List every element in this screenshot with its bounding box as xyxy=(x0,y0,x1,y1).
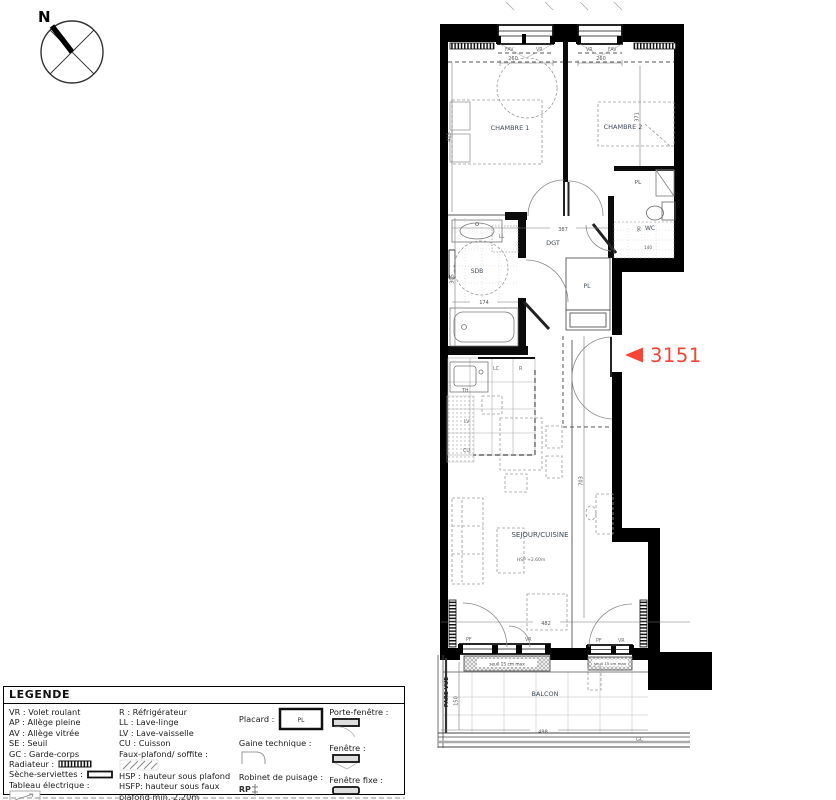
dim-415: 415 xyxy=(447,132,453,142)
legend-column-2: R : Réfrigérateur LL : Lave-linge LV : L… xyxy=(119,707,239,800)
legend-label: VR : Volet roulant xyxy=(9,707,80,717)
label-pf-1: PF xyxy=(466,637,472,643)
legend-item: HSP : hauteur sous plafond xyxy=(119,771,239,781)
dim-260-left: 260 xyxy=(508,56,518,62)
unit-number: 3151 xyxy=(650,344,702,367)
fenetre-symbol xyxy=(329,753,361,771)
label-vr-1: VR xyxy=(536,47,543,53)
legend-item: SE : Seuil xyxy=(9,738,119,748)
legend-body: VR : Volet roulant AP : Allège pleine AV… xyxy=(4,704,404,800)
kitchen-counter-outline xyxy=(473,370,535,455)
label-dgt: DGT xyxy=(546,239,560,247)
floor-plan-page: N xyxy=(0,0,836,800)
dim-387: 387 xyxy=(558,227,568,233)
windows xyxy=(458,2,634,671)
legend-label: Fenêtre fixe : xyxy=(329,775,383,785)
placard-symbol: PL xyxy=(278,707,324,731)
legend-label: Placard : xyxy=(239,714,275,724)
label-vr-4: VR xyxy=(618,638,625,644)
gaine-technique-symbol xyxy=(239,748,269,766)
legend-label: LL : Lave-linge xyxy=(119,717,178,727)
label-cu: CU xyxy=(463,448,470,454)
label-vr-2: VR xyxy=(586,47,593,53)
label-hsp: HSP +2.60m xyxy=(517,557,546,563)
label-pare-vue: PARE-VUE xyxy=(444,677,450,707)
legend-label: CU : Cuisson xyxy=(119,738,171,748)
floor-plan-svg: N xyxy=(0,0,836,800)
legend-label: Sèche-serviettes : xyxy=(9,769,83,779)
label-ll: LL xyxy=(499,234,505,240)
legend-item: LL : Lave-linge xyxy=(119,717,239,727)
legend-label: Fenêtre : xyxy=(329,743,365,753)
legend-item: AP : Allège pleine xyxy=(9,717,119,727)
legend-column-4: Porte-fenêtre : Fenêtre : Fenêtre fixe :… xyxy=(329,707,400,800)
compass-rose: N xyxy=(38,8,103,83)
unit-marker: 3151 xyxy=(625,344,702,367)
unit-arrow-icon xyxy=(625,348,643,363)
dim-90: 90 xyxy=(637,226,642,232)
legend-item: Fenêtre fixe : xyxy=(329,775,400,797)
legend-title: LEGENDE xyxy=(4,687,404,704)
label-wc: WC xyxy=(645,225,655,232)
room-labels: CHAMBRE 1 CHAMBRE 2 WC DGT SDB PL PL SEJ… xyxy=(444,123,655,707)
label-seuil-1: seuil 15 cm max xyxy=(489,662,525,668)
legend-label: Tableau électrique : xyxy=(9,780,89,790)
label-fav-1: FAV xyxy=(505,47,514,53)
legend-label: Porte-fenêtre : xyxy=(329,707,388,717)
legend-label: AP : Allège pleine xyxy=(9,717,81,727)
legend-label: R : Réfrigérateur xyxy=(119,707,187,717)
dim-260-right: 260 xyxy=(596,56,606,62)
legend-item: Robinet de puisage : RP xyxy=(239,772,329,796)
legend-item: CU : Cuisson xyxy=(119,738,239,748)
north-needle xyxy=(52,26,72,52)
truncated-note xyxy=(3,796,405,800)
legend-item: LV : Lave-vaisselle xyxy=(119,728,239,738)
legend-label: Gaine technique : xyxy=(239,738,312,748)
dim-305: 305 xyxy=(450,274,456,284)
label-chambre1: CHAMBRE 1 xyxy=(491,124,530,132)
legend-label: Faux-plafond/ soffite : xyxy=(119,749,208,759)
legend-label: GC : Garde-corps xyxy=(9,749,79,759)
dim-150: 150 xyxy=(454,696,460,706)
legend-item: VR : Volet roulant xyxy=(9,707,119,717)
legend-item: Gaine technique : xyxy=(239,738,329,766)
dim-482: 482 xyxy=(541,621,551,627)
dim-498: 498 xyxy=(538,730,548,736)
label-th: TH xyxy=(461,388,469,394)
doors xyxy=(463,180,632,647)
legend-label: LV : Lave-vaisselle xyxy=(119,728,194,738)
label-chambre2: CHAMBRE 2 xyxy=(604,123,643,131)
furniture xyxy=(450,58,674,690)
label-lc: LC xyxy=(493,366,500,372)
dim-703: 703 xyxy=(579,476,585,486)
label-seuil-2: seuil 15 cm max xyxy=(594,661,627,666)
legend-item: R : Réfrigérateur xyxy=(119,707,239,717)
towel-dryer-symbol xyxy=(87,770,113,779)
legend-label: Robinet de puisage : xyxy=(239,772,323,782)
soffit-symbol xyxy=(119,759,159,771)
legend-label: Radiateur : xyxy=(9,759,54,769)
label-fav-2: FAV xyxy=(608,47,617,53)
label-pl-chambre2: PL xyxy=(635,180,642,186)
compass-north-label: N xyxy=(38,8,51,26)
radiator-symbol xyxy=(58,760,92,768)
label-sdb: SDB xyxy=(471,268,484,275)
legend-label: HSP : hauteur sous plafond xyxy=(119,771,230,781)
legend-item: GC : Garde-corps xyxy=(9,749,119,759)
placard-symbol-text: PL xyxy=(298,717,306,724)
label-vr-3: VR xyxy=(525,637,532,643)
dim-140: 140 xyxy=(644,245,652,250)
legend-item: Placard : PL xyxy=(239,707,329,731)
rp-symbol-text: RP xyxy=(239,785,251,795)
label-lv: LV xyxy=(464,419,470,425)
legend-item: Porte-fenêtre : xyxy=(329,707,400,739)
legend-item: Radiateur : xyxy=(9,759,119,769)
porte-fenetre-symbol xyxy=(329,717,361,739)
dim-174: 174 xyxy=(479,300,489,306)
label-pl-entry: PL xyxy=(584,283,592,290)
legend-panel: LEGENDE VR : Volet roulant AP : Allège p… xyxy=(3,686,405,795)
label-pf-2: PF xyxy=(596,638,602,644)
legend-item: AV : Allège vitrée xyxy=(9,728,119,738)
label-balcon: BALCON xyxy=(531,690,558,698)
legend-item: Fenêtre : xyxy=(329,743,400,771)
legend-column-1: VR : Volet roulant AP : Allège pleine AV… xyxy=(9,707,119,800)
legend-item: Sèche-serviettes : xyxy=(9,769,119,779)
legend-label: AV : Allège vitrée xyxy=(9,728,79,738)
legend-item: Faux-plafond/ soffite : xyxy=(119,749,239,771)
towel-dryer xyxy=(449,250,455,278)
dim-371: 371 xyxy=(635,112,641,122)
legend-column-3: Placard : PL Gaine technique : Robinet d… xyxy=(239,707,329,800)
robinet-puisage-symbol: RP xyxy=(239,783,259,797)
label-r: R xyxy=(519,366,523,372)
label-sejour: SEJOUR/CUISINE xyxy=(511,531,568,539)
legend-label: SE : Seuil xyxy=(9,738,47,748)
label-gc: GC xyxy=(636,737,644,743)
